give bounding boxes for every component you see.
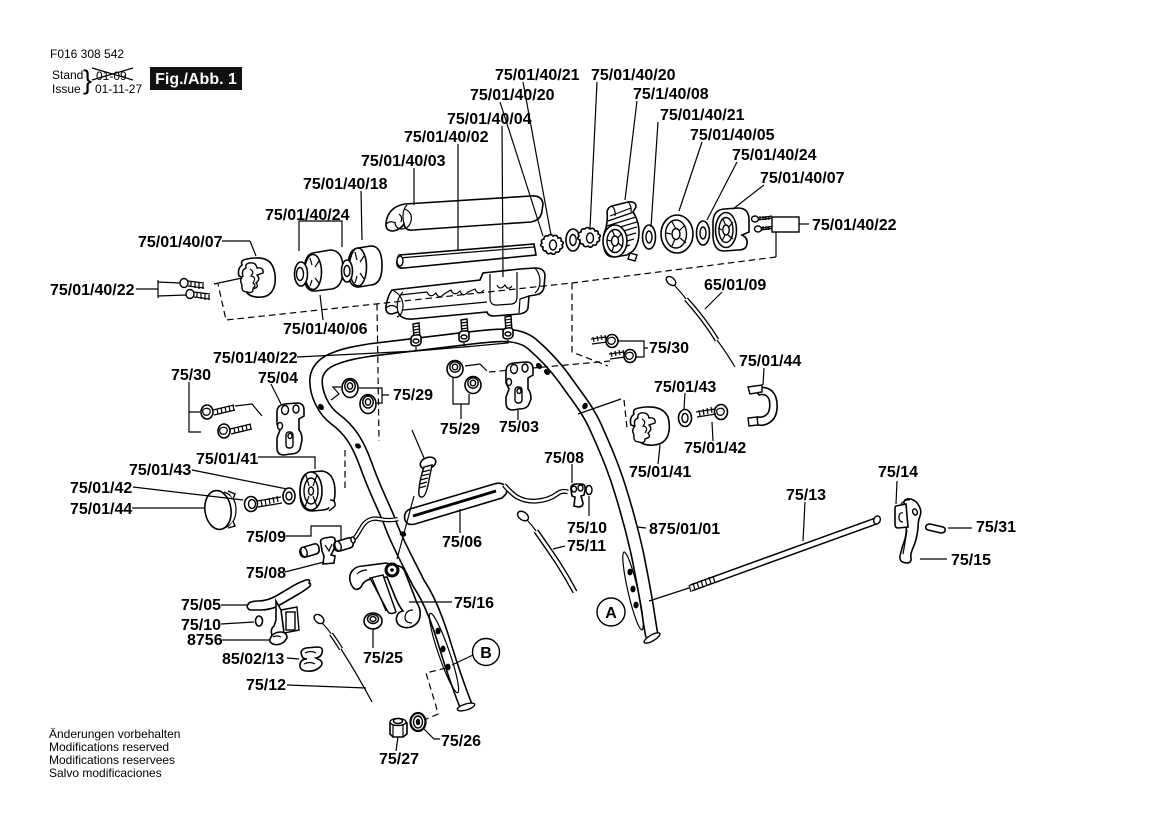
svg-text:Modifications reservees: Modifications reservees [49, 753, 175, 767]
svg-text:Fig./Abb. 1: Fig./Abb. 1 [155, 71, 237, 88]
svg-text:F016 308 542: F016 308 542 [50, 47, 124, 61]
svg-text:75/04: 75/04 [258, 370, 298, 387]
svg-text:75/1/40/08: 75/1/40/08 [633, 86, 709, 103]
svg-text:75/13: 75/13 [786, 487, 826, 504]
svg-text:75/15: 75/15 [951, 552, 991, 569]
svg-text:B: B [480, 645, 492, 662]
svg-text:75/01/42: 75/01/42 [70, 480, 132, 497]
svg-text:75/01/40/22: 75/01/40/22 [50, 282, 135, 299]
svg-text:75/03: 75/03 [499, 419, 539, 436]
svg-text:75/30: 75/30 [649, 340, 689, 357]
svg-text:75/01/40/07: 75/01/40/07 [760, 170, 845, 187]
svg-text:75/16: 75/16 [454, 595, 494, 612]
svg-text:75/01/40/18: 75/01/40/18 [303, 176, 388, 193]
svg-text:75/01/41: 75/01/41 [196, 451, 258, 468]
svg-text:75/06: 75/06 [442, 534, 482, 551]
svg-text:75/29: 75/29 [393, 387, 433, 404]
svg-text:65/01/09: 65/01/09 [704, 277, 766, 294]
svg-text:75/10: 75/10 [567, 520, 607, 537]
svg-text:75/26: 75/26 [441, 733, 481, 750]
svg-text:01-11-27: 01-11-27 [95, 82, 142, 96]
svg-text:75/01/40/04: 75/01/40/04 [447, 111, 532, 128]
svg-text:Salvo modificaciones: Salvo modificaciones [49, 766, 162, 780]
svg-text:Issue: Issue [52, 82, 81, 96]
svg-text:75/01/40/21: 75/01/40/21 [660, 107, 745, 124]
svg-text:75/08: 75/08 [246, 565, 286, 582]
svg-text:75/14: 75/14 [878, 464, 918, 481]
svg-text:75/30: 75/30 [171, 367, 211, 384]
svg-text:75/12: 75/12 [246, 677, 286, 694]
svg-text:75/01/43: 75/01/43 [129, 462, 191, 479]
svg-text:75/11: 75/11 [567, 538, 606, 555]
svg-text:75/01/40/22: 75/01/40/22 [213, 350, 298, 367]
svg-text:75/25: 75/25 [363, 650, 403, 667]
svg-text:75/01/40/06: 75/01/40/06 [283, 321, 368, 338]
svg-text:75/01/40/03: 75/01/40/03 [361, 153, 446, 170]
svg-text:Änderungen vorbehalten: Änderungen vorbehalten [49, 727, 180, 741]
svg-text:75/01/40/07: 75/01/40/07 [138, 234, 223, 251]
svg-text:85/02/13: 85/02/13 [222, 651, 284, 668]
svg-text:75/09: 75/09 [246, 529, 286, 546]
svg-text:75/01/42: 75/01/42 [684, 440, 746, 457]
svg-text:75/01/40/22: 75/01/40/22 [812, 217, 897, 234]
svg-text:8756: 8756 [187, 632, 223, 649]
svg-text:75/05: 75/05 [181, 597, 221, 614]
svg-text:75/01/40/21: 75/01/40/21 [495, 67, 580, 84]
svg-text:75/01/41: 75/01/41 [629, 464, 691, 481]
svg-text:}: } [83, 65, 92, 95]
svg-text:Stand: Stand [52, 68, 83, 82]
svg-text:75/01/40/02: 75/01/40/02 [404, 129, 489, 146]
svg-text:75/01/44: 75/01/44 [739, 353, 801, 370]
svg-text:75/27: 75/27 [379, 751, 419, 768]
svg-text:Modifications reserved: Modifications reserved [49, 740, 169, 754]
svg-text:75/31: 75/31 [976, 519, 1016, 536]
svg-text:A: A [605, 605, 617, 622]
svg-text:75/01/40/24: 75/01/40/24 [732, 147, 817, 164]
svg-text:75/01/44: 75/01/44 [70, 501, 132, 518]
svg-text:875/01/01: 875/01/01 [649, 521, 720, 538]
svg-text:75/08: 75/08 [544, 450, 584, 467]
svg-text:75/01/40/20: 75/01/40/20 [470, 87, 555, 104]
svg-text:75/29: 75/29 [440, 421, 480, 438]
svg-text:75/01/40/05: 75/01/40/05 [690, 127, 775, 144]
svg-text:75/01/40/20: 75/01/40/20 [591, 67, 676, 84]
